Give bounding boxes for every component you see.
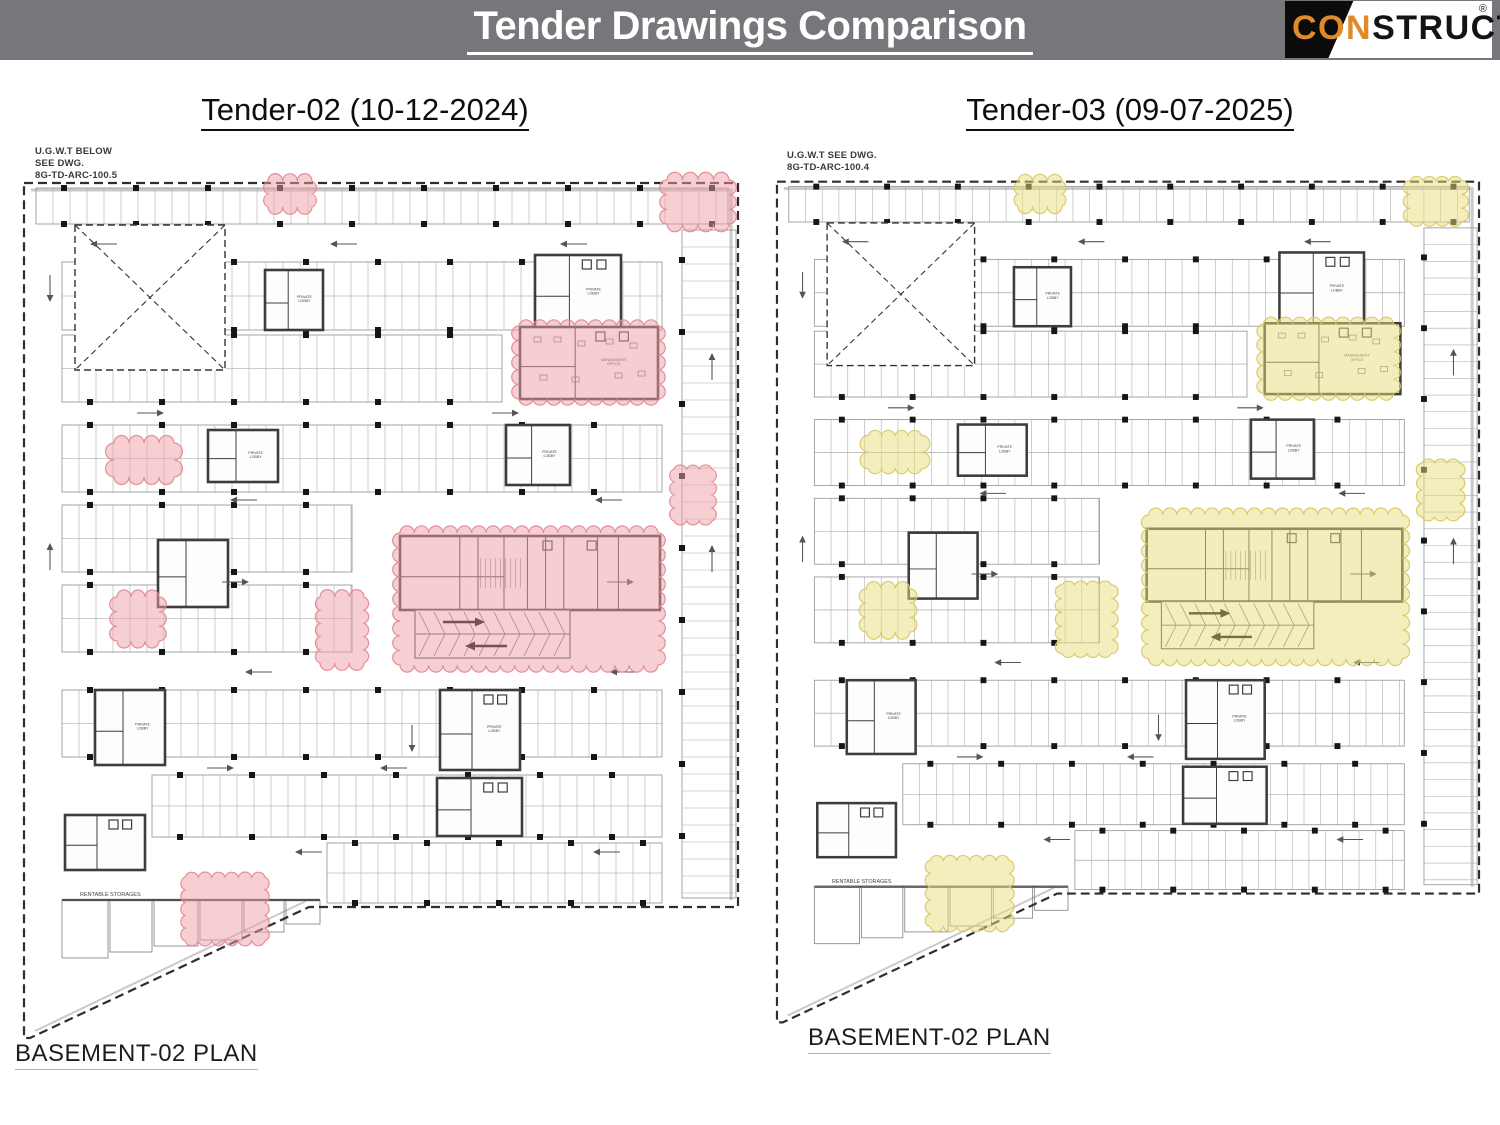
void-xbox	[827, 223, 974, 366]
dwg-note-right-line1: U.G.W.T SEE DWG.	[787, 150, 877, 162]
svg-text:RENTABLE STORAGES: RENTABLE STORAGES	[832, 879, 892, 885]
highlight-cloud	[181, 872, 269, 946]
plan-label-right: BASEMENT-02 PLAN	[808, 1024, 1051, 1054]
title-bar: Tender Drawings Comparison CONSTRUCT ®	[0, 0, 1500, 60]
highlight-cloud	[859, 582, 917, 640]
highlight-cloud	[393, 526, 666, 672]
dwg-note-left-line1: U.G.W.T BELOW	[35, 146, 117, 158]
svg-text:PRIVATELOBBY: PRIVATELOBBY	[1330, 284, 1345, 292]
svg-text:PRIVATELOBBY: PRIVATELOBBY	[542, 450, 557, 458]
svg-text:PRIVATELOBBY: PRIVATELOBBY	[1232, 714, 1247, 722]
dwg-note-right-line2: 8G-TD-ARC-100.4	[787, 162, 877, 174]
floor-plan-tender-03: RENTABLE STORAGESPRIVATELOBBYPRIVATELOBB…	[775, 178, 1481, 1030]
highlight-cloud	[670, 465, 717, 525]
svg-text:PRIVATELOBBY: PRIVATELOBBY	[997, 445, 1012, 453]
highlight-cloud	[264, 174, 317, 215]
plan-label-left: BASEMENT-02 PLAN	[15, 1040, 258, 1070]
highlight-cloud	[1403, 176, 1468, 226]
highlight-cloud	[660, 172, 737, 232]
registered-trademark-icon: ®	[1479, 3, 1487, 15]
slide: Tender Drawings Comparison CONSTRUCT ® T…	[0, 0, 1500, 1125]
subtitle-tender-02: Tender-02 (10-12-2024)	[135, 92, 595, 128]
svg-text:PRIVATELOBBY: PRIVATELOBBY	[135, 722, 150, 730]
highlight-cloud	[1014, 174, 1066, 213]
logo-text-con: CON	[1292, 9, 1372, 47]
void-xbox	[75, 225, 225, 370]
page-title: Tender Drawings Comparison	[467, 0, 1032, 55]
subtitle-tender-03: Tender-03 (09-07-2025)	[900, 92, 1360, 128]
highlight-cloud	[925, 855, 1014, 932]
highlight-cloud	[1416, 459, 1465, 521]
highlight-cloud	[512, 320, 666, 405]
highlight-cloud	[106, 436, 183, 485]
svg-text:PRIVATELOBBY: PRIVATELOBBY	[1286, 444, 1301, 452]
highlight-cloud	[1141, 508, 1409, 666]
construct-logo: CONSTRUCT ®	[1285, 1, 1492, 58]
dwg-note-right: U.G.W.T SEE DWG. 8G-TD-ARC-100.4	[787, 150, 877, 174]
highlight-cloud	[1257, 317, 1401, 400]
highlight-cloud	[860, 430, 930, 474]
floor-plan-tender-02: RENTABLE STORAGESPRIVATELOBBYPRIVATELOBB…	[22, 180, 740, 1045]
dwg-note-left-line2: SEE DWG.	[35, 158, 117, 170]
svg-text:PRIVATELOBBY: PRIVATELOBBY	[586, 287, 601, 295]
highlight-cloud	[110, 590, 167, 648]
logo-text: CONSTRUCT	[1292, 9, 1500, 48]
svg-text:PRIVATELOBBY: PRIVATELOBBY	[297, 295, 312, 303]
highlight-cloud	[1055, 581, 1118, 657]
svg-text:PRIVATELOBBY: PRIVATELOBBY	[886, 712, 901, 720]
svg-text:PRIVATELOBBY: PRIVATELOBBY	[248, 451, 263, 459]
svg-text:PRIVATELOBBY: PRIVATELOBBY	[487, 725, 502, 733]
highlight-cloud	[315, 590, 368, 671]
dwg-note-left: U.G.W.T BELOW SEE DWG. 8G-TD-ARC-100.5	[35, 146, 117, 182]
svg-text:RENTABLE STORAGES: RENTABLE STORAGES	[80, 892, 141, 898]
title-wrap: Tender Drawings Comparison	[0, 0, 1500, 60]
svg-text:PRIVATELOBBY: PRIVATELOBBY	[1045, 292, 1060, 300]
